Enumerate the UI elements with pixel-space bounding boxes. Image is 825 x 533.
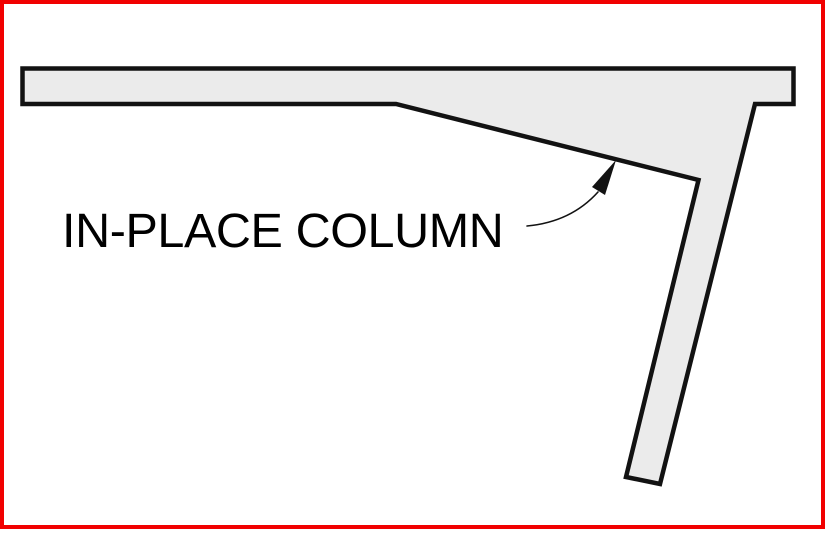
in-place-column-label: IN-PLACE COLUMN (62, 204, 503, 258)
slab-and-column-shape (23, 69, 794, 485)
leader-arrowhead (592, 160, 616, 195)
leader-curve (527, 192, 598, 226)
structural-section-drawing: IN-PLACE COLUMN (4, 4, 825, 533)
drawing-frame: IN-PLACE COLUMN (0, 0, 825, 529)
